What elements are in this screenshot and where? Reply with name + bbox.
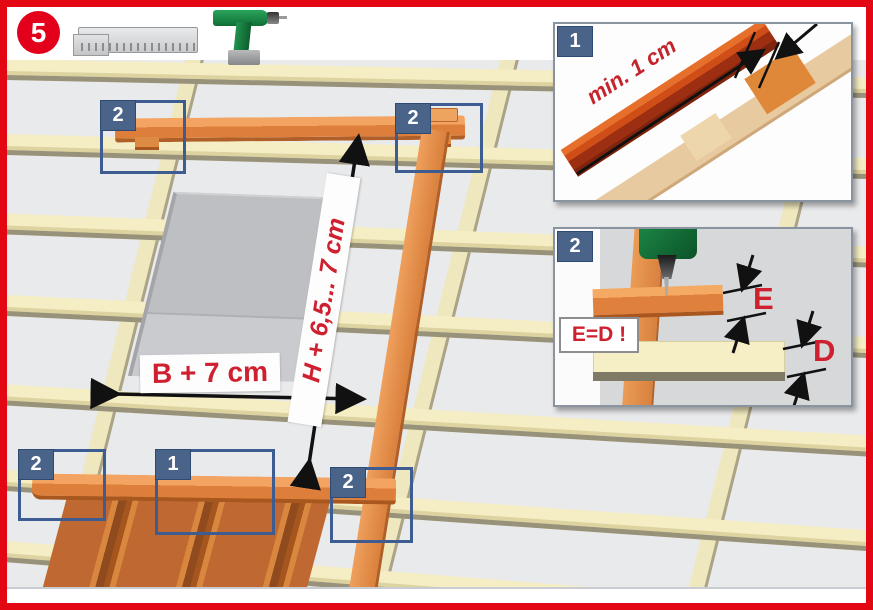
drill-battery	[228, 50, 260, 65]
callout-box-top-left: 2	[100, 100, 186, 174]
drill-handle	[233, 22, 251, 52]
step-number-badge: 5	[17, 11, 60, 54]
inset2-note-box: E=D !	[559, 317, 639, 353]
callout-box-bottom-center: 1	[155, 449, 275, 535]
width-measurement-label: B + 7 cm	[140, 353, 281, 393]
inset2-drill-body	[639, 227, 697, 259]
inset-detail-drilling: E D E=D ! 2	[553, 227, 853, 407]
inset2-badge: 2	[557, 231, 593, 262]
folding-ruler-icon	[78, 27, 198, 53]
step-number: 5	[31, 17, 47, 49]
inset2-orange-batten	[593, 285, 724, 320]
callout-box-bottom-left: 2	[18, 449, 106, 521]
drill-chuck	[267, 12, 279, 24]
inset1-batten	[561, 22, 853, 202]
drill-icon	[213, 8, 285, 66]
inset1-badge: 1	[557, 26, 593, 57]
callout-box-top-right: 2	[395, 103, 483, 173]
inset2-lower-dim-label: D	[813, 333, 835, 369]
inset2-upper-dim-label: E	[753, 281, 774, 317]
inset1-dimension-arrow	[555, 24, 851, 200]
callout-box-bottom-right: 2	[330, 467, 413, 543]
callout-badge: 1	[155, 449, 191, 480]
callout-badge: 2	[100, 100, 136, 131]
callout-badge: 2	[395, 103, 431, 134]
drill-bit	[279, 16, 287, 19]
callout-badge: 2	[330, 467, 366, 498]
installation-instruction-figure: 5	[0, 0, 873, 610]
inset-detail-tile-clearance: min. 1 cm 1	[553, 22, 853, 202]
callout-badge: 2	[18, 449, 54, 480]
inset2-batten-shadow	[593, 372, 785, 381]
